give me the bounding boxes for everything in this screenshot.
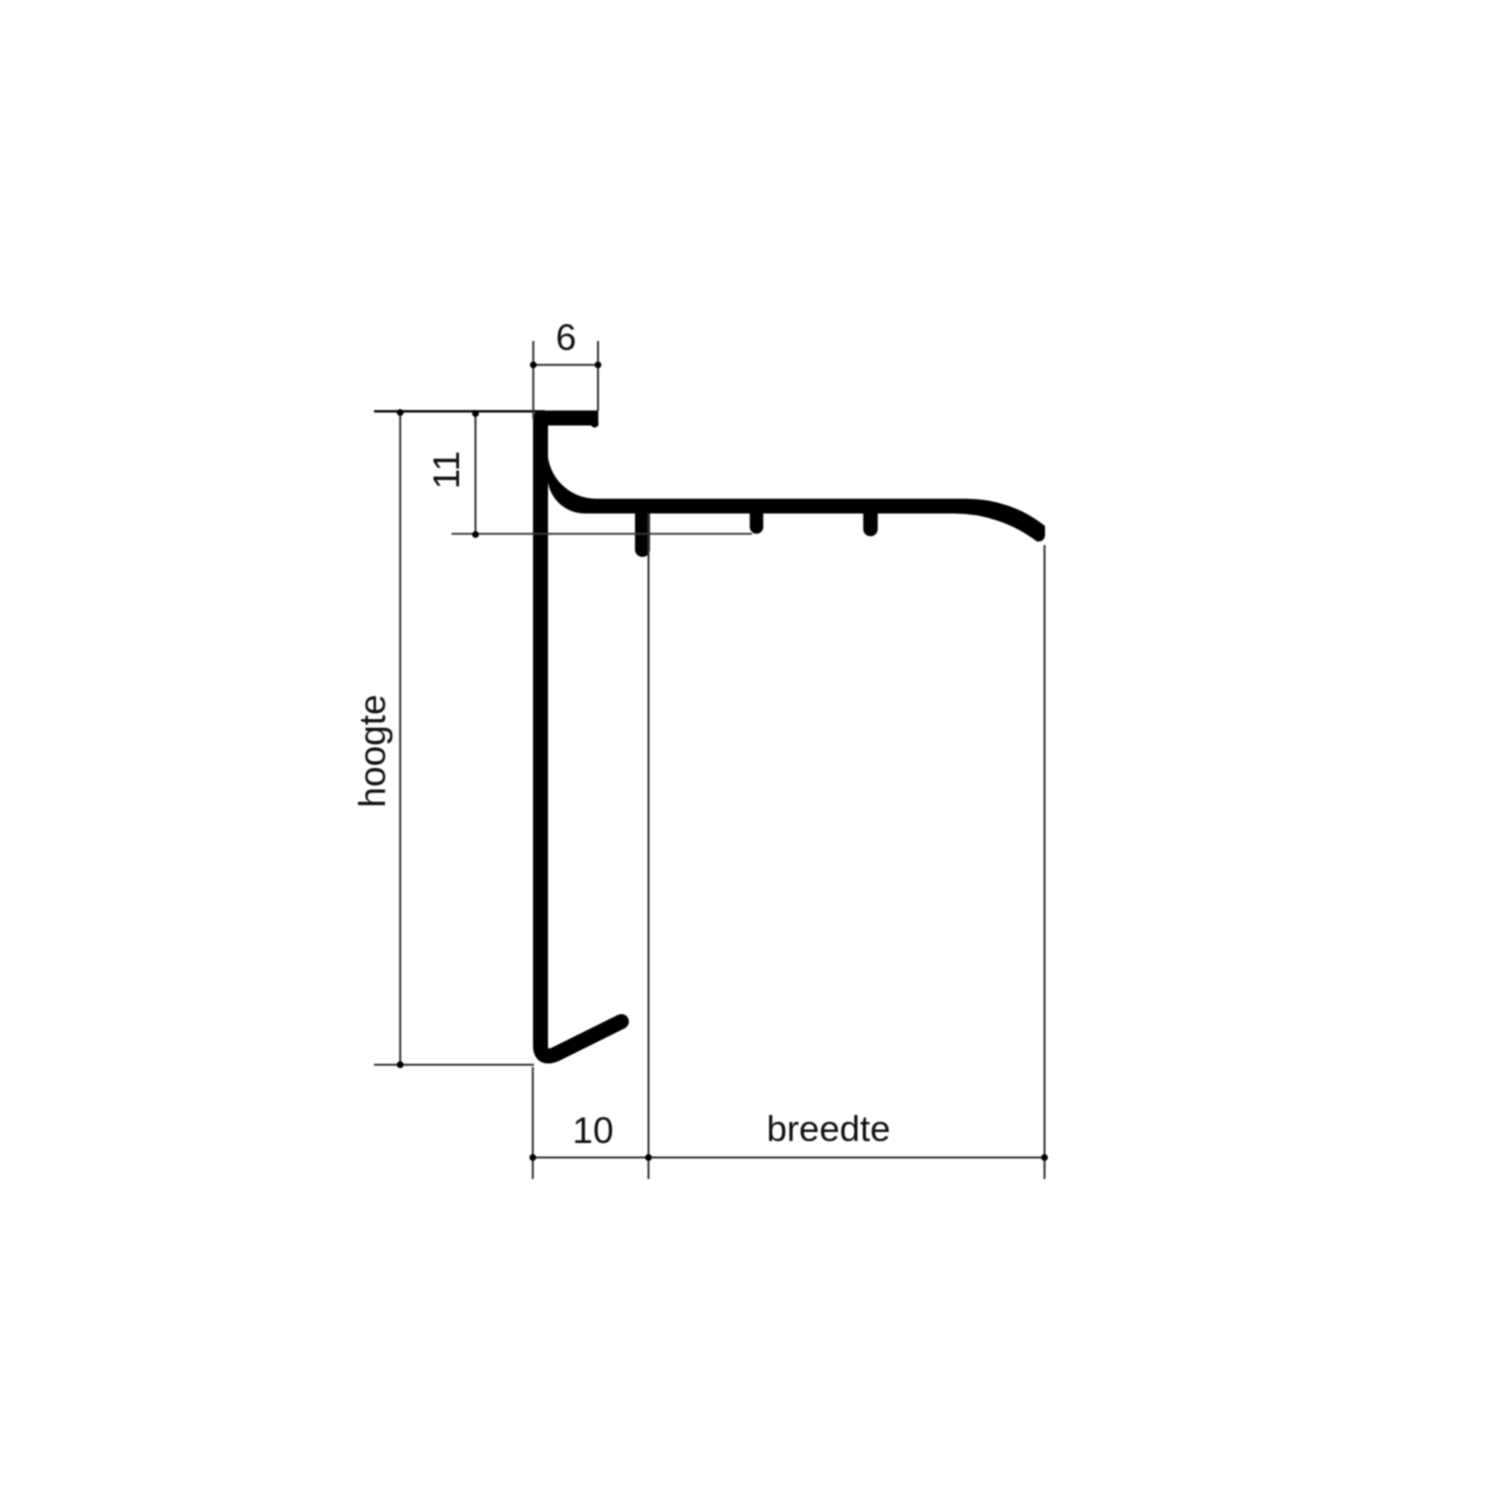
svg-text:11: 11 — [426, 451, 467, 489]
svg-text:6: 6 — [556, 317, 577, 358]
svg-text:breedte: breedte — [767, 1108, 891, 1149]
svg-text:10: 10 — [572, 1110, 613, 1151]
svg-text:hoogte: hoogte — [352, 694, 393, 807]
